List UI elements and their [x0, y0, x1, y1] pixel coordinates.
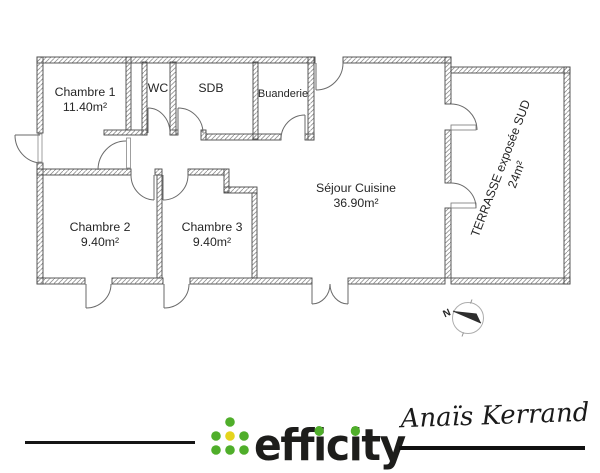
- room-label-chambre1: Chambre 1: [55, 85, 116, 99]
- brand-part-i1: i: [313, 420, 326, 471]
- brand-i-dot-icon: i: [313, 424, 326, 468]
- room-label-wc: WC: [148, 81, 169, 95]
- brand-wordmark: efficity: [254, 424, 405, 468]
- brand-part-c: c: [326, 420, 349, 471]
- room-area-chambre2: 9.40m²: [81, 235, 119, 249]
- floorplan-page: Chambre 1 11.40m² WC SDB Buanderie Séjou…: [0, 0, 600, 473]
- brand-divider-line: [25, 441, 195, 444]
- room-label-chambre3: Chambre 3: [182, 220, 243, 234]
- compass-icon: N: [441, 300, 483, 337]
- brand-part-i2: i: [349, 420, 362, 471]
- room-area-chambre3: 9.40m²: [193, 235, 231, 249]
- room-label-buanderie: Buanderie: [258, 88, 308, 100]
- compass-north-label: N: [441, 307, 452, 320]
- brand-dots-icon: [210, 416, 250, 456]
- signature-underline: [399, 446, 585, 450]
- brand-i-dot-icon: i: [349, 424, 362, 468]
- brand-part-eff: eff: [254, 420, 313, 471]
- room-area-chambre1: 11.40m²: [63, 100, 107, 114]
- room-label-sejour: Séjour Cuisine: [316, 181, 396, 195]
- room-label-chambre2: Chambre 2: [70, 220, 131, 234]
- room-label-sdb: SDB: [198, 81, 223, 95]
- room-label-terrasse-group: TERRASSE exposée SUD 24m²: [468, 98, 549, 245]
- room-area-sejour: 36.90m²: [333, 196, 378, 210]
